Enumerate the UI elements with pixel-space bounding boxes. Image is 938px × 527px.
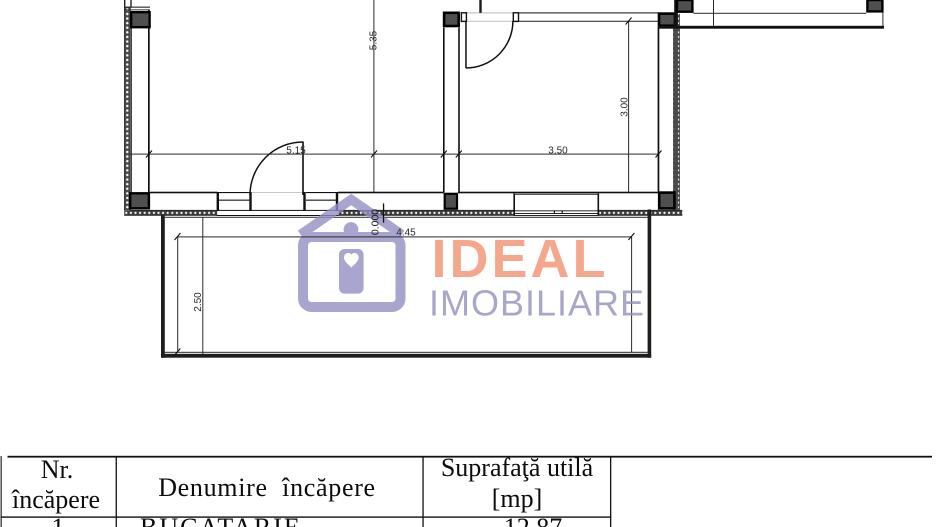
svg-text:2.50: 2.50 — [193, 292, 204, 312]
svg-text:[mp]: [mp] — [492, 484, 543, 513]
svg-text:3.50: 3.50 — [548, 146, 568, 157]
svg-text:12.87: 12.87 — [504, 513, 563, 527]
svg-text:3.00: 3.00 — [620, 97, 631, 117]
svg-text:1: 1 — [52, 513, 65, 527]
svg-text:Suprafaţă utilă: Suprafaţă utilă — [441, 453, 594, 482]
svg-text:încăpere: încăpere — [11, 485, 100, 514]
svg-text:0.000: 0.000 — [370, 209, 382, 235]
svg-text:Nr.: Nr. — [41, 455, 74, 484]
svg-text:IMOBILIARE: IMOBILIARE — [429, 283, 645, 324]
svg-text:BUCATARIE: BUCATARIE — [140, 513, 302, 527]
svg-text:5.35: 5.35 — [369, 30, 380, 50]
svg-text:4.45: 4.45 — [396, 227, 416, 238]
svg-text:Denumire încăpere: Denumire încăpere — [158, 473, 376, 502]
svg-text:5.15: 5.15 — [286, 146, 306, 157]
svg-text:IDEAL: IDEAL — [432, 229, 606, 289]
